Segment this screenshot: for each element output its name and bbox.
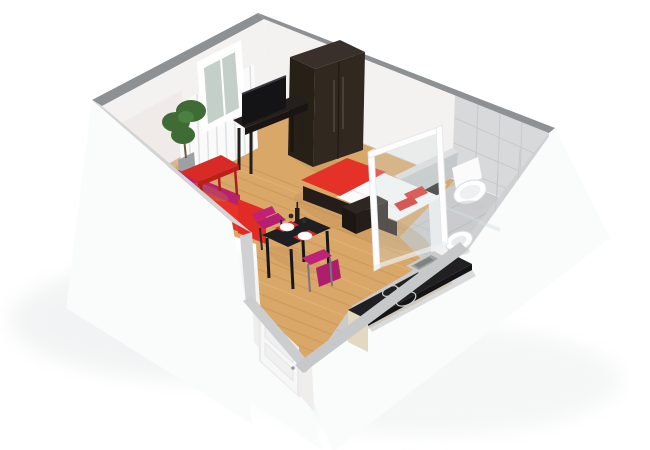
glass [289,214,294,219]
bottle [295,208,300,222]
door-handle [291,366,295,370]
plate [298,232,312,240]
apartment-render [0,0,650,450]
floorplan-image [0,0,650,450]
plate [280,223,294,231]
glass [302,219,307,224]
